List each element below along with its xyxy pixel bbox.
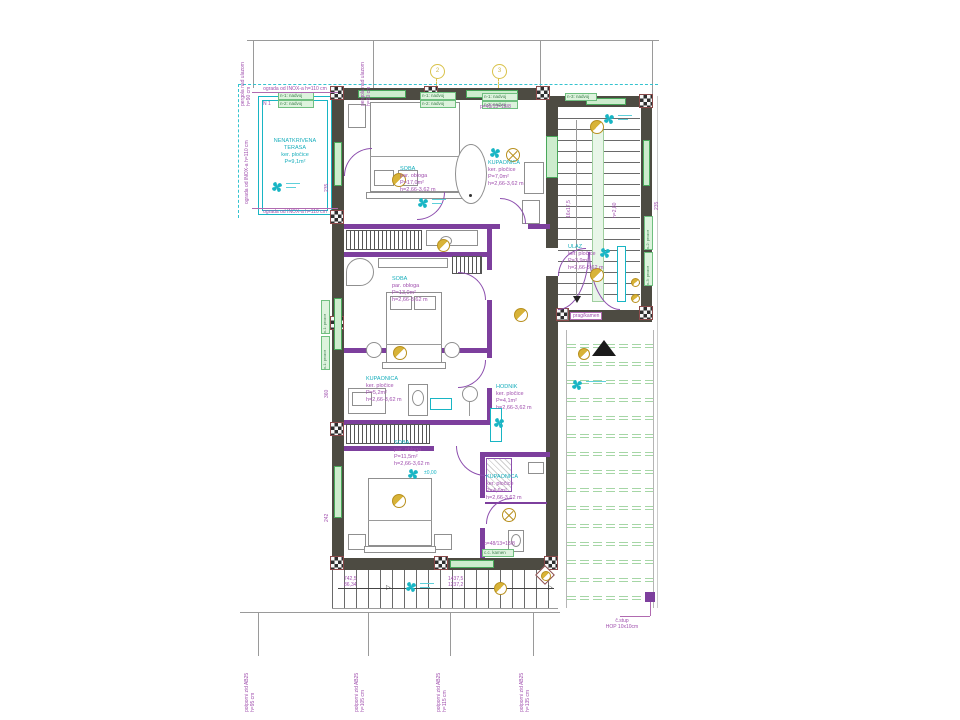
grid-bubble: 3 xyxy=(492,64,507,79)
room-height: h=2,66-3,62 m xyxy=(394,461,430,468)
entrance-arrow xyxy=(592,340,616,356)
partition-wall xyxy=(344,224,500,229)
room-label-soba3: SOBA par. obloga P=11,5m² h=2,66-3,62 m xyxy=(394,440,430,468)
armchair xyxy=(346,258,374,286)
headboard xyxy=(364,546,436,553)
threshold-label: prag/kamen xyxy=(570,312,602,320)
roof-overhang-dashed-line xyxy=(238,84,658,85)
washer xyxy=(430,398,452,410)
washbasin xyxy=(524,162,544,194)
lintel-tag: n-2: nadvoj xyxy=(420,100,456,108)
column-leader xyxy=(620,616,650,617)
wall-dimension: 235 xyxy=(654,168,663,210)
exterior-wall-wing-right xyxy=(641,96,652,322)
pergola-label-height: h=90 cm xyxy=(246,44,252,106)
lintel-tag: n-1: nadvoj xyxy=(482,93,518,101)
grid-bubble: 2 xyxy=(430,64,445,79)
room-name: NENATKRIVENA xyxy=(262,138,328,145)
room-height: h=2,66-3,62 m xyxy=(400,187,436,194)
dressing-table xyxy=(378,258,448,268)
room-name: SOBA xyxy=(394,440,430,447)
room-label-kupaonica1: KUPAONICA ker. pločice P=7,0m² h=2,66-3,… xyxy=(488,160,524,188)
room-name: KUPAONICA xyxy=(488,160,524,167)
terrace-door xyxy=(334,142,342,186)
room-floor: ker. pločice xyxy=(262,152,328,159)
stair-formula-bottom: p=48/13=18/8 xyxy=(484,541,515,547)
exterior-wall-right xyxy=(546,322,558,570)
door-swing xyxy=(456,446,486,476)
window-tag: v-2: prozor xyxy=(644,216,653,250)
masonry-pier xyxy=(434,556,448,570)
column-leader xyxy=(650,602,651,616)
logo-text-line xyxy=(586,381,606,382)
bottom-leader-line xyxy=(368,612,369,656)
room-name: HODNIK xyxy=(496,384,532,391)
room-height: h=2,66-3,62 m xyxy=(496,405,532,412)
level-marker xyxy=(631,294,640,303)
wall-dimension: 235 xyxy=(324,150,333,192)
grid-axis-line xyxy=(498,78,499,88)
door-swing xyxy=(458,360,486,388)
walkline-arrow-icon: ▷ xyxy=(548,585,553,591)
headboard xyxy=(382,362,446,369)
bathtub-drain xyxy=(469,194,472,197)
masonry-pier xyxy=(639,306,653,320)
window xyxy=(643,140,650,186)
wall-label-height: h=135 cm xyxy=(525,640,531,712)
pergola-label: pergola nad ulazom h=90 cm xyxy=(240,44,254,106)
sink xyxy=(528,462,544,474)
lintel-tag: n-3: nadvoj xyxy=(565,93,597,101)
stair-dimension: 16x17,5 xyxy=(566,170,575,218)
pillow xyxy=(374,170,394,186)
room-height: h=2,66-3,62 m xyxy=(486,495,522,502)
level-marker xyxy=(514,308,528,322)
room-name: ULAZ xyxy=(568,244,604,251)
room-floor: ker. pločice xyxy=(568,251,604,258)
logo-text-line xyxy=(286,187,296,188)
room-floor: ker. pločice xyxy=(486,481,522,488)
pergola-label: pergola nad ulazom h=90 cm xyxy=(360,44,374,106)
pinwheel-logo-icon xyxy=(602,112,616,131)
room-label-kupaonica2: KUPAONICA ker. pločice P=5,2m² h=2,66-3,… xyxy=(366,376,402,404)
retaining-wall-label: potporni zid AB25 h=105 cm xyxy=(354,640,368,712)
room-area: P=13,0m² xyxy=(392,290,428,297)
top-dimension-line xyxy=(247,40,659,41)
nightstand xyxy=(366,342,382,358)
room-floor: par. obloga xyxy=(392,283,428,290)
room-floor: ker. pločice xyxy=(496,391,532,398)
wall-label-height: h=105 cm xyxy=(360,640,366,712)
corner-mark: N 1 xyxy=(263,101,271,107)
room-floor: par. obloga xyxy=(394,447,430,454)
room-name: SOBA xyxy=(400,166,436,173)
logo-text-line xyxy=(286,183,300,184)
dimension-value: 1237,2 xyxy=(448,582,463,588)
stair-dimension: h=2,80 xyxy=(612,170,621,218)
wall-label-height: h=95 cm xyxy=(250,640,256,712)
top-leader-line xyxy=(652,40,653,94)
level-text: ±0,00 xyxy=(424,470,436,476)
railing-label-left: ograda od INOX-a h=110 cm xyxy=(244,112,254,204)
dimension-value: 86,34 xyxy=(344,582,357,588)
partition-wall xyxy=(487,224,492,270)
room-label-soba1: SOBA par. obloga P=17,0m² h=2,66-3,62 m xyxy=(400,166,436,194)
stair-dimension: 1437,5 1237,2 xyxy=(448,576,463,588)
room-label-hodnik: HODNIK ker. pločice P=4,1m² h=2,66-3,62 … xyxy=(496,384,532,412)
room-name: KUPAONICA xyxy=(486,474,522,481)
bottom-leader-line xyxy=(258,612,259,656)
level-marker xyxy=(541,571,551,581)
room-height: h=2,66-3,62 m xyxy=(392,297,428,304)
pergola-label-height: h=90 cm xyxy=(366,44,372,106)
level-marker xyxy=(631,278,640,287)
pinwheel-logo-icon xyxy=(416,196,430,215)
wall-dimension: 242 xyxy=(324,480,333,522)
bed-fold-line xyxy=(386,344,442,345)
floor-plan-canvas: pergola nad ulazom h=90 cm pergola nad u… xyxy=(0,0,960,720)
wall-hall-wing xyxy=(546,232,558,248)
retaining-wall-label: potporni zid AB25 h=135 cm xyxy=(519,640,533,712)
masonry-pier xyxy=(536,86,550,100)
lintel-tag: n-2: nadvoj xyxy=(278,100,314,108)
partition-wall xyxy=(528,224,550,229)
room-area: P=17,0m² xyxy=(400,180,436,187)
lintel-tag: n-1: nadvoj xyxy=(420,92,456,100)
wall-hall-wing xyxy=(546,100,558,136)
lintel-tag: n-1: nadvoj xyxy=(278,92,314,100)
railing-label-bottom: ograda od INOX-a h=110 cm xyxy=(252,208,338,215)
bed-fold-line xyxy=(370,156,460,157)
masonry-pier xyxy=(330,556,344,570)
stair-bottom-edge xyxy=(332,608,558,609)
room-floor: par. obloga xyxy=(400,173,436,180)
shower-head xyxy=(462,386,478,402)
material-tag: c.c. kamen xyxy=(482,549,514,557)
walkline-arrow-icon: ▷ xyxy=(386,585,391,591)
nightstand xyxy=(434,534,452,550)
room-height: h=2,66-3,62 m xyxy=(488,181,524,188)
stair-walk-line xyxy=(338,588,554,589)
partition-wall xyxy=(480,452,550,457)
room-area: P=4,6m² xyxy=(486,488,522,495)
bottom-leader-line xyxy=(450,612,451,656)
pinwheel-logo-icon xyxy=(406,467,420,486)
column-label: č.stup HOP 10x10cm xyxy=(592,618,652,630)
wardrobe xyxy=(452,256,482,274)
room-area: P=11,5m² xyxy=(394,454,430,461)
desk xyxy=(426,230,478,246)
pinwheel-logo-icon xyxy=(270,180,284,199)
bottom-leader-line xyxy=(533,612,534,656)
logo-text-line xyxy=(618,119,628,120)
room-label-ulaz: ULAZ ker. pločice P=3,9m² h=2,66-3,62 m xyxy=(568,244,604,272)
room-name: TERASA xyxy=(262,145,328,152)
wall-label-height: h=115 cm xyxy=(442,640,448,712)
masonry-pier xyxy=(639,94,653,108)
logo-text-line xyxy=(420,587,430,588)
level-marker xyxy=(578,348,590,360)
room-area: P=5,2m² xyxy=(366,390,402,397)
window xyxy=(450,560,494,568)
window xyxy=(334,298,342,350)
room-label-soba2: SOBA par. obloga P=13,0m² h=2,66-3,62 m xyxy=(392,276,428,304)
shower-stem xyxy=(469,402,470,416)
wall-dimension: 360 xyxy=(324,356,333,398)
railing-label-top: ograda od INOX-a h=110 cm xyxy=(252,86,338,93)
pergola-terrace xyxy=(566,330,654,608)
pinwheel-logo-icon xyxy=(404,580,418,599)
logo-text-line xyxy=(432,199,446,200)
retaining-wall-label: potporni zid AB25 h=95 cm xyxy=(244,640,258,712)
logo-text-line xyxy=(618,115,632,116)
masonry-pier xyxy=(330,422,344,436)
stair-formula-top: p=48/13=18/8 xyxy=(480,104,511,110)
pinwheel-logo-icon xyxy=(492,416,506,435)
exterior-stair-treads xyxy=(332,570,558,608)
level-marker xyxy=(392,494,406,508)
window-tag: v-3: prozor xyxy=(644,252,653,286)
window-tag: v-1: prozor xyxy=(321,300,330,334)
room-label-kupaonica3: KUPAONICA ker. pločice P=4,6m² h=2,66-3,… xyxy=(486,474,522,502)
toilet-bowl xyxy=(412,390,424,406)
level-marker xyxy=(437,239,450,252)
steel-column xyxy=(645,592,655,602)
stair-direction-arrow xyxy=(573,296,581,303)
bed xyxy=(368,478,432,546)
nightstand xyxy=(348,104,366,128)
room-height: h=2,66-3,62 m xyxy=(366,397,402,404)
column-label-line: HOP 10x10cm xyxy=(592,624,652,630)
logo-text-line xyxy=(432,203,442,204)
retaining-wall-label: potporni zid AB25 h=115 cm xyxy=(436,640,450,712)
window xyxy=(546,136,558,178)
room-area: P=9,1m² xyxy=(262,159,328,166)
door-swing xyxy=(344,148,372,176)
nightstand xyxy=(444,342,460,358)
room-area: P=4,1m² xyxy=(496,398,532,405)
room-name: SOBA xyxy=(392,276,428,283)
room-area: P=7,0m² xyxy=(488,174,524,181)
room-floor: ker. pločice xyxy=(488,167,524,174)
room-height: h=2,66-3,62 m xyxy=(568,265,604,272)
logo-text-line xyxy=(420,583,434,584)
roof-overhang-dashed-line xyxy=(238,84,239,218)
bed-fold-line xyxy=(368,520,432,521)
room-label-terrace: NENATKRIVENA TERASA ker. pločice P=9,1m² xyxy=(262,138,328,166)
room-name: KUPAONICA xyxy=(366,376,402,383)
window xyxy=(334,466,342,518)
pinwheel-logo-icon xyxy=(570,378,584,397)
bottom-leader-line xyxy=(240,612,560,613)
room-area: P=3,9m² xyxy=(568,258,604,265)
stair-dimension: 742,5 86,34 xyxy=(344,576,357,588)
light-fixture-icon xyxy=(502,508,516,522)
room-floor: ker. pločice xyxy=(366,383,402,390)
door-swing xyxy=(458,272,486,300)
level-marker xyxy=(393,346,407,360)
wardrobe xyxy=(346,230,422,250)
level-marker xyxy=(494,582,507,595)
